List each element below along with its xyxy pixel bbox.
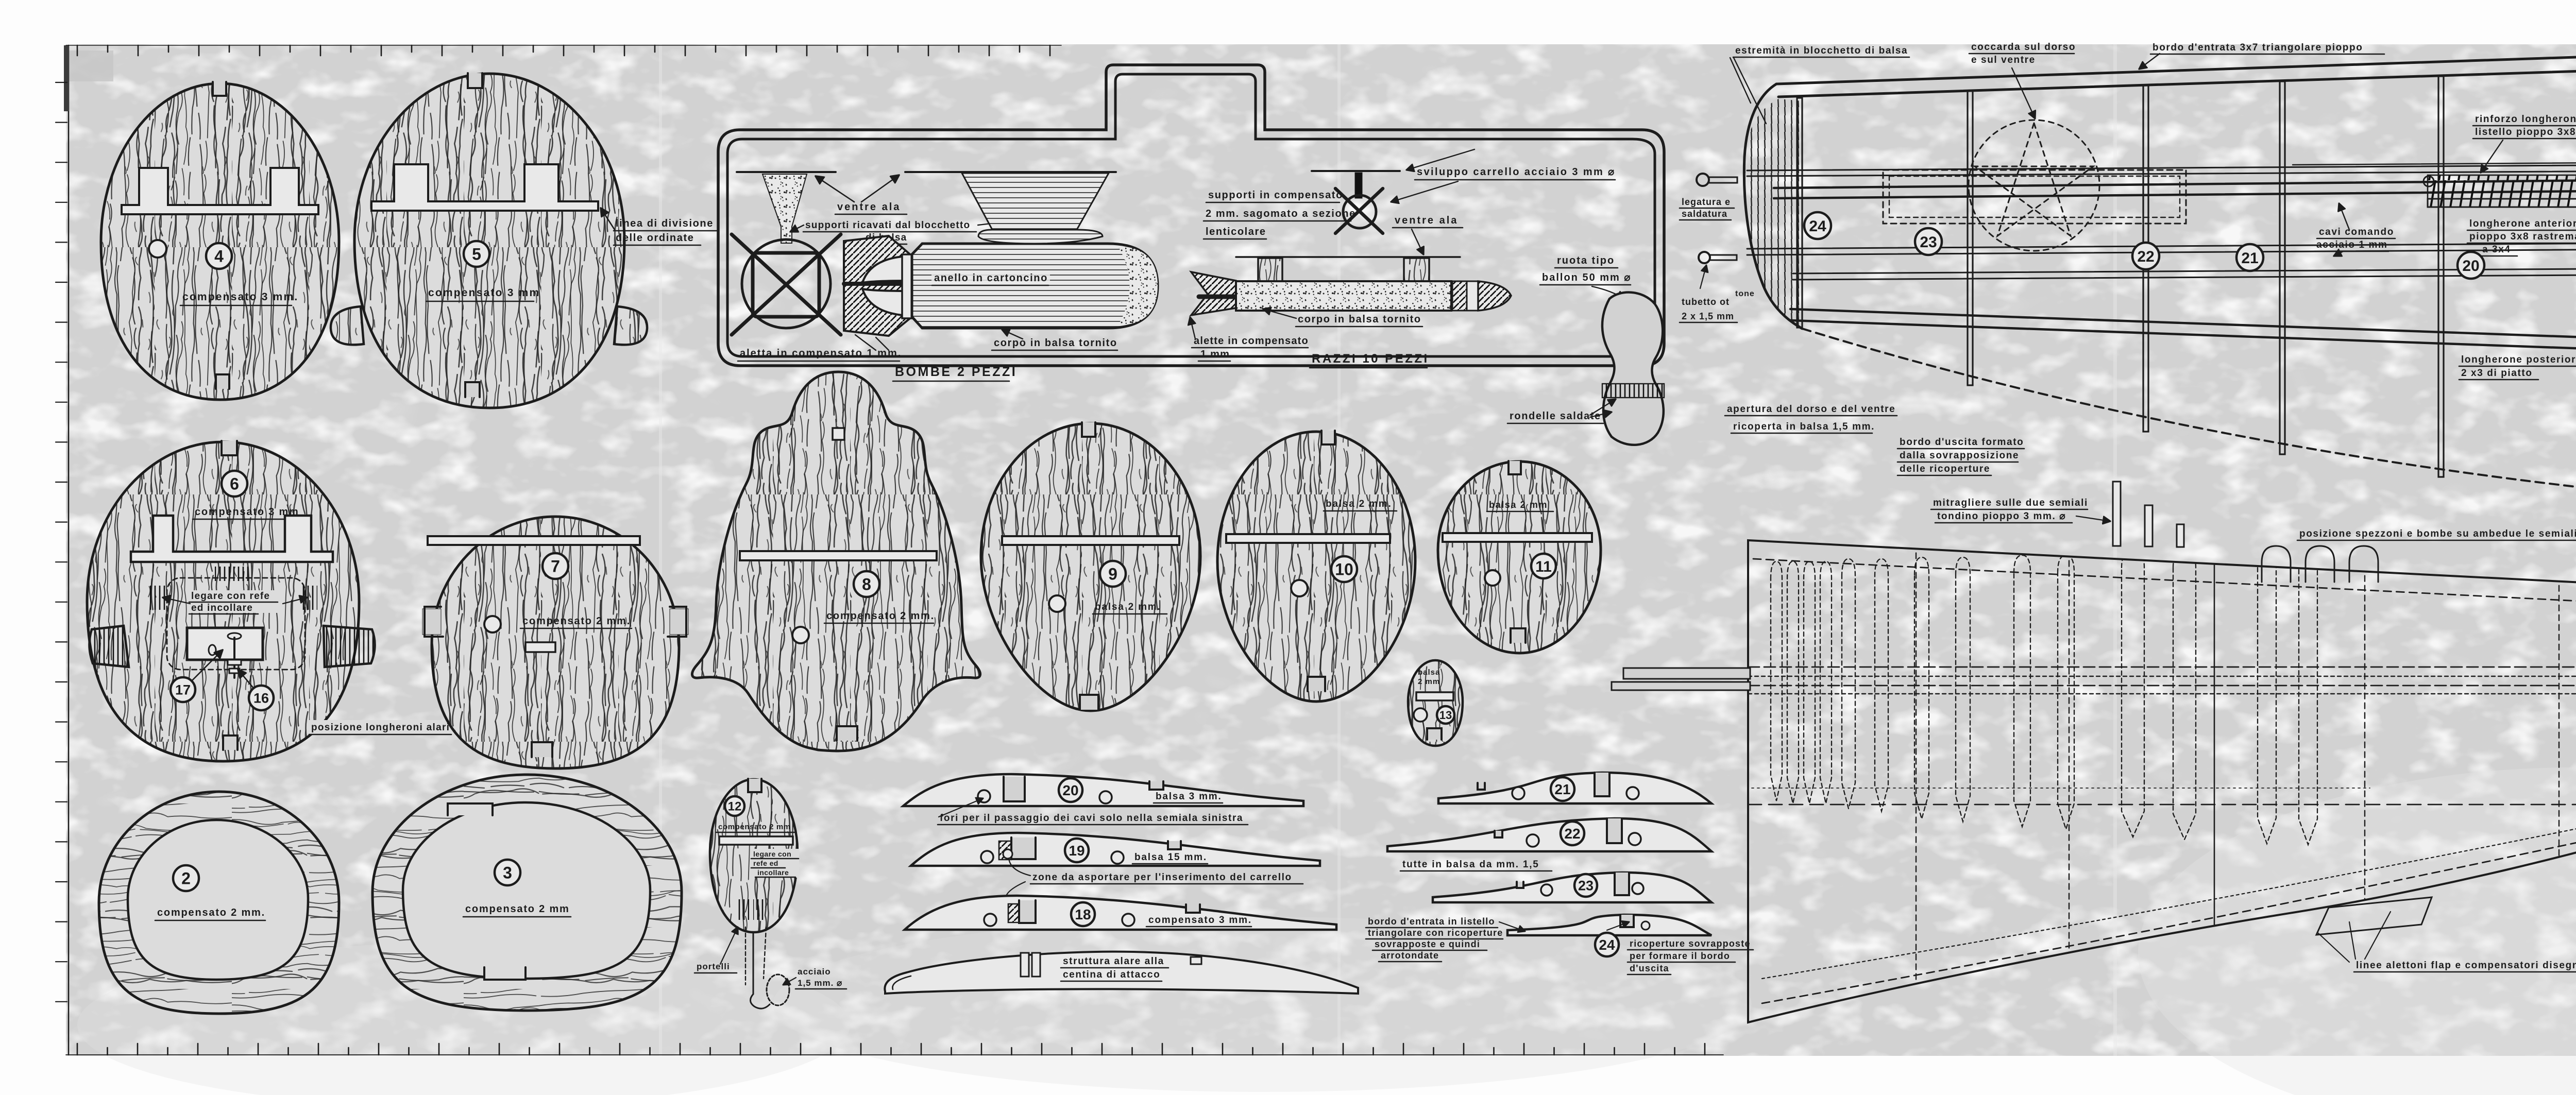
svg-text:23: 23 xyxy=(1578,878,1594,894)
svg-text:legare con: legare con xyxy=(753,850,791,858)
svg-text:acciaio 1 mm: acciaio 1 mm xyxy=(2316,239,2388,250)
svg-text:zone da asportare per l'inse: zone da asportare per l'inserimento del … xyxy=(1032,872,1292,883)
svg-text:ricoperture sovrapposte: ricoperture sovrapposte xyxy=(1630,938,1751,949)
svg-text:per formare il bordo: per formare il bordo xyxy=(1630,951,1730,961)
svg-text:21: 21 xyxy=(2241,250,2258,267)
svg-text:19: 19 xyxy=(1069,843,1084,859)
svg-text:aletta in compensato 1 mm.: aletta in compensato 1 mm. xyxy=(740,348,902,359)
svg-text:rinforzo longherone: rinforzo longherone xyxy=(2475,114,2576,125)
svg-text:21: 21 xyxy=(1554,781,1570,797)
svg-text:balsa 15 mm.: balsa 15 mm. xyxy=(1134,852,1207,863)
svg-text:tone: tone xyxy=(1735,289,1755,298)
svg-text:18: 18 xyxy=(1075,906,1091,922)
svg-text:saldatura: saldatura xyxy=(1682,209,1727,219)
svg-text:linea di divisione: linea di divisione xyxy=(616,218,714,229)
svg-text:posizione spezzoni e bombe: posizione spezzoni e bombe su ambedue le… xyxy=(2299,528,2576,539)
svg-text:16: 16 xyxy=(253,691,269,706)
svg-text:longherone anteriore: longherone anteriore xyxy=(2469,218,2576,229)
svg-text:anello in cartoncino: anello in cartoncino xyxy=(934,272,1048,284)
svg-text:RAZZI 10 PEZZI: RAZZI 10 PEZZI xyxy=(1312,352,1429,366)
svg-text:d'uscita: d'uscita xyxy=(1630,963,1669,973)
svg-text:balsa 2 mm.: balsa 2 mm. xyxy=(1095,602,1161,612)
svg-text:balsa: balsa xyxy=(1418,668,1440,677)
svg-text:bordo d'entrata 3x7 triangolar: bordo d'entrata 3x7 triangolare pioppo xyxy=(2153,42,2363,53)
svg-text:longherone posteriore balsa: longherone posteriore balsa xyxy=(2461,354,2576,365)
svg-text:24: 24 xyxy=(1809,218,1826,235)
svg-text:compensato 3 mm: compensato 3 mm xyxy=(428,287,540,299)
svg-text:tubetto ot: tubetto ot xyxy=(1682,297,1730,307)
svg-text:9: 9 xyxy=(1108,565,1117,584)
svg-text:pioppo 3x8 rastremato: pioppo 3x8 rastremato xyxy=(2469,231,2576,242)
svg-text:refe ed: refe ed xyxy=(753,859,778,867)
svg-text:compensato 2 mm: compensato 2 mm xyxy=(465,903,570,915)
svg-text:compensato 2 mm.: compensato 2 mm. xyxy=(522,615,631,627)
svg-text:alette in compensato: alette in compensato xyxy=(1194,335,1309,347)
svg-text:compensato 2 mm.: compensato 2 mm. xyxy=(157,907,265,918)
svg-text:struttura alare alla: struttura alare alla xyxy=(1063,956,1164,967)
svg-text:compensato 3 mm.: compensato 3 mm. xyxy=(1148,915,1252,926)
svg-text:sviluppo carrello acciaio 3 mm: sviluppo carrello acciaio 3 mm ⌀ xyxy=(1417,166,1616,178)
svg-text:5: 5 xyxy=(472,245,481,264)
svg-text:delle ricoperture: delle ricoperture xyxy=(1900,464,1990,474)
svg-text:posizione longheroni alari: posizione longheroni alari xyxy=(311,722,450,733)
svg-text:6: 6 xyxy=(230,475,239,493)
svg-text:estremità in blocchetto di bal: estremità in blocchetto di balsa xyxy=(1735,45,1908,56)
svg-text:corpo in balsa tornito: corpo in balsa tornito xyxy=(1298,314,1421,325)
svg-text:portelli: portelli xyxy=(697,962,730,971)
svg-text:legatura e: legatura e xyxy=(1682,197,1731,207)
svg-text:mitragliere sulle due semiali: mitragliere sulle due semiali xyxy=(1933,498,2088,508)
svg-text:12: 12 xyxy=(728,800,742,814)
svg-text:ruota tipo: ruota tipo xyxy=(1557,255,1615,266)
svg-text:13: 13 xyxy=(1439,709,1452,722)
svg-text:tutte in balsa da mm. 1,5: tutte in balsa da mm. 1,5 xyxy=(1402,859,1539,870)
svg-text:triangolare con ricoperture: triangolare con ricoperture xyxy=(1368,928,1503,938)
svg-text:ventre ala: ventre ala xyxy=(1395,215,1458,226)
svg-text:a 3x4: a 3x4 xyxy=(2482,244,2511,255)
svg-text:cavi comando: cavi comando xyxy=(2319,227,2394,237)
svg-text:supporti in compensato: supporti in compensato xyxy=(1208,190,1343,201)
svg-text:rondelle saldate: rondelle saldate xyxy=(1510,410,1601,422)
svg-text:centina di attacco: centina di attacco xyxy=(1063,969,1160,980)
svg-text:2 x3 di piatto: 2 x3 di piatto xyxy=(2461,368,2533,379)
svg-text:acciaio: acciaio xyxy=(798,967,831,977)
svg-text:lenticolare: lenticolare xyxy=(1206,226,1266,237)
svg-text:fori per il passaggio dei cavi: fori per il passaggio dei cavi solo nell… xyxy=(940,813,1243,824)
svg-text:4: 4 xyxy=(214,247,224,266)
svg-text:2 mm: 2 mm xyxy=(1418,677,1440,686)
svg-text:compensato 3 mm.: compensato 3 mm. xyxy=(182,291,298,303)
svg-text:corpo in balsa tornito: corpo in balsa tornito xyxy=(994,337,1117,349)
svg-text:e sul ventre: e sul ventre xyxy=(1971,55,2036,65)
svg-text:compensato 3 mm: compensato 3 mm xyxy=(195,506,299,518)
svg-text:8: 8 xyxy=(862,575,871,594)
svg-text:incollare: incollare xyxy=(757,868,789,877)
svg-text:listello pioppo 3x8: listello pioppo 3x8 xyxy=(2475,127,2576,138)
svg-text:20: 20 xyxy=(1062,782,1078,798)
svg-text:20: 20 xyxy=(2462,258,2479,275)
svg-text:apertura del dorso e del ventr: apertura del dorso e del ventre xyxy=(1727,404,1895,415)
svg-text:compensato 2 mm.: compensato 2 mm. xyxy=(826,610,935,622)
svg-text:ricoperta in balsa 1,5 mm.: ricoperta in balsa 1,5 mm. xyxy=(1733,421,1875,432)
svg-text:7: 7 xyxy=(551,557,560,576)
svg-text:ventre ala: ventre ala xyxy=(837,201,901,213)
svg-text:legare con refe: legare con refe xyxy=(191,591,270,602)
svg-text:sovrapposte e quindi: sovrapposte e quindi xyxy=(1375,939,1480,949)
svg-text:compensato 2 mm: compensato 2 mm xyxy=(718,823,791,831)
svg-text:ed incollare: ed incollare xyxy=(191,603,253,613)
svg-text:22: 22 xyxy=(1564,826,1580,842)
svg-text:23: 23 xyxy=(1920,234,1937,251)
svg-text:coccarda sul dorso: coccarda sul dorso xyxy=(1971,42,2076,53)
svg-text:delle ordinate: delle ordinate xyxy=(616,232,694,244)
svg-text:17: 17 xyxy=(175,682,191,698)
svg-text:supporti ricavati dal blocchet: supporti ricavati dal blocchetto xyxy=(805,220,970,231)
svg-text:22: 22 xyxy=(2137,248,2154,265)
svg-text:linee alettoni flap e compensa: linee alettoni flap e compensatori diseg… xyxy=(2356,960,2576,971)
svg-text:2: 2 xyxy=(181,869,191,888)
svg-text:1 mm: 1 mm xyxy=(1200,349,1230,360)
svg-text:dalla sovrapposizione: dalla sovrapposizione xyxy=(1900,450,2019,461)
svg-text:balsa 2 mm: balsa 2 mm xyxy=(1489,500,1548,510)
svg-text:2 mm. sagomato a sezione: 2 mm. sagomato a sezione xyxy=(1206,208,1356,219)
svg-text:24: 24 xyxy=(1599,937,1615,953)
svg-text:tondino pioppo 3 mm. ⌀: tondino pioppo 3 mm. ⌀ xyxy=(1937,511,2066,522)
svg-text:2 x 1,5 mm: 2 x 1,5 mm xyxy=(1682,311,1734,321)
svg-text:bordo d'entrata in listello: bordo d'entrata in listello xyxy=(1368,916,1495,927)
svg-text:balsa 2 mm.: balsa 2 mm. xyxy=(1326,499,1392,509)
svg-text:1,5 mm. ⌀: 1,5 mm. ⌀ xyxy=(798,978,842,988)
svg-text:arrotondate: arrotondate xyxy=(1381,950,1439,961)
svg-text:bordo d'uscita formato: bordo d'uscita formato xyxy=(1900,437,2024,448)
svg-text:10: 10 xyxy=(1335,560,1353,579)
svg-text:3: 3 xyxy=(503,864,512,882)
svg-text:BOMBE 2 PEZZI: BOMBE 2 PEZZI xyxy=(895,365,1017,379)
svg-text:balsa 3 mm.: balsa 3 mm. xyxy=(1156,791,1222,802)
svg-text:ballon 50 mm ⌀: ballon 50 mm ⌀ xyxy=(1542,272,1631,283)
svg-text:11: 11 xyxy=(1535,558,1552,575)
